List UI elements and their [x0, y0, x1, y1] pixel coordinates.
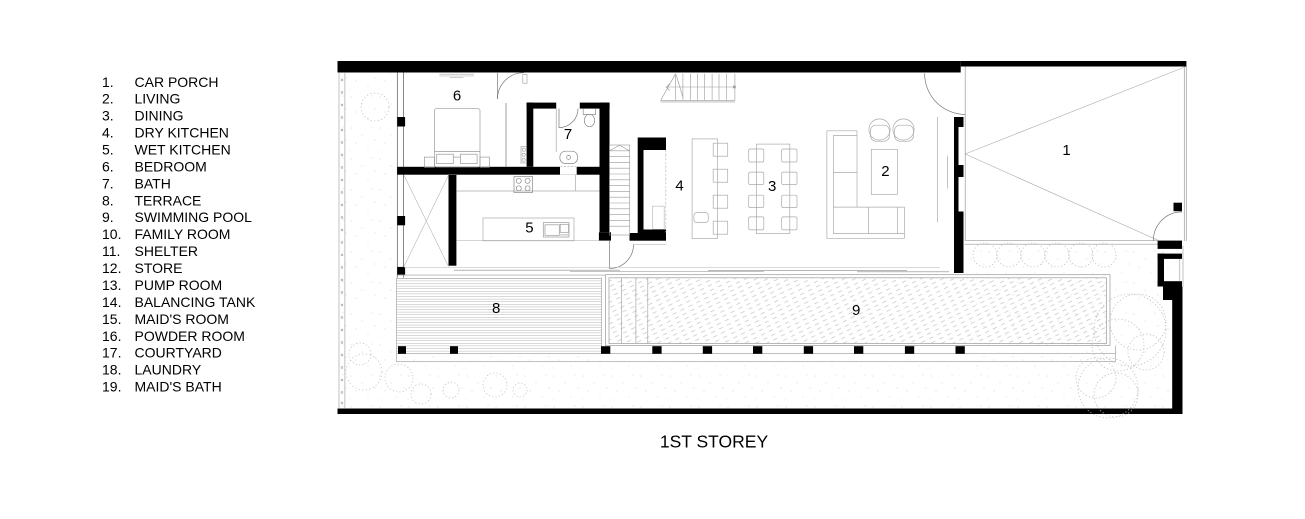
svg-text:DRY KITCHEN: DRY KITCHEN — [135, 125, 229, 141]
svg-text:LIVING: LIVING — [135, 91, 181, 107]
svg-text:5: 5 — [525, 220, 533, 237]
svg-text:8.: 8. — [102, 192, 114, 208]
svg-text:17.: 17. — [102, 345, 121, 361]
svg-text:CAR PORCH: CAR PORCH — [135, 74, 219, 90]
svg-text:6: 6 — [453, 88, 461, 105]
svg-text:PUMP ROOM: PUMP ROOM — [135, 277, 223, 293]
svg-text:BEDROOM: BEDROOM — [135, 159, 207, 175]
svg-text:19.: 19. — [102, 379, 121, 395]
svg-text:DINING: DINING — [135, 108, 184, 124]
svg-text:POWDER ROOM: POWDER ROOM — [135, 328, 245, 344]
svg-text:2: 2 — [881, 163, 889, 180]
svg-text:1: 1 — [1062, 142, 1070, 159]
svg-text:2.: 2. — [102, 91, 114, 107]
svg-text:FAMILY ROOM: FAMILY ROOM — [135, 226, 231, 242]
svg-text:5.: 5. — [102, 142, 114, 158]
svg-text:STORE: STORE — [135, 260, 183, 276]
svg-text:14.: 14. — [102, 294, 121, 310]
svg-text:18.: 18. — [102, 362, 121, 378]
svg-text:3.: 3. — [102, 108, 114, 124]
svg-text:7.: 7. — [102, 175, 114, 191]
svg-text:BALANCING TANK: BALANCING TANK — [135, 294, 257, 310]
svg-text:3: 3 — [768, 178, 776, 195]
svg-text:9.: 9. — [102, 209, 114, 225]
svg-text:WET KITCHEN: WET KITCHEN — [135, 142, 231, 158]
svg-text:6.: 6. — [102, 159, 114, 175]
svg-text:12.: 12. — [102, 260, 121, 276]
svg-text:SWIMMING POOL: SWIMMING POOL — [135, 209, 253, 225]
svg-text:16.: 16. — [102, 328, 121, 344]
svg-text:4: 4 — [675, 178, 683, 195]
svg-text:9: 9 — [852, 302, 860, 319]
svg-text:13.: 13. — [102, 277, 121, 293]
svg-text:MAID'S BATH: MAID'S BATH — [135, 379, 222, 395]
svg-text:1ST STOREY: 1ST STOREY — [660, 432, 769, 452]
svg-text:4.: 4. — [102, 125, 114, 141]
svg-text:TERRACE: TERRACE — [135, 192, 202, 208]
svg-text:10.: 10. — [102, 226, 121, 242]
svg-text:MAID'S ROOM: MAID'S ROOM — [135, 311, 229, 327]
svg-text:7: 7 — [564, 126, 572, 143]
svg-text:1.: 1. — [102, 74, 114, 90]
svg-text:15.: 15. — [102, 311, 121, 327]
svg-text:COURTYARD: COURTYARD — [135, 345, 222, 361]
svg-text:11.: 11. — [102, 243, 120, 259]
svg-text:LAUNDRY: LAUNDRY — [135, 362, 202, 378]
svg-text:BATH: BATH — [135, 175, 171, 191]
svg-text:SHELTER: SHELTER — [135, 243, 199, 259]
svg-text:8: 8 — [492, 300, 500, 317]
